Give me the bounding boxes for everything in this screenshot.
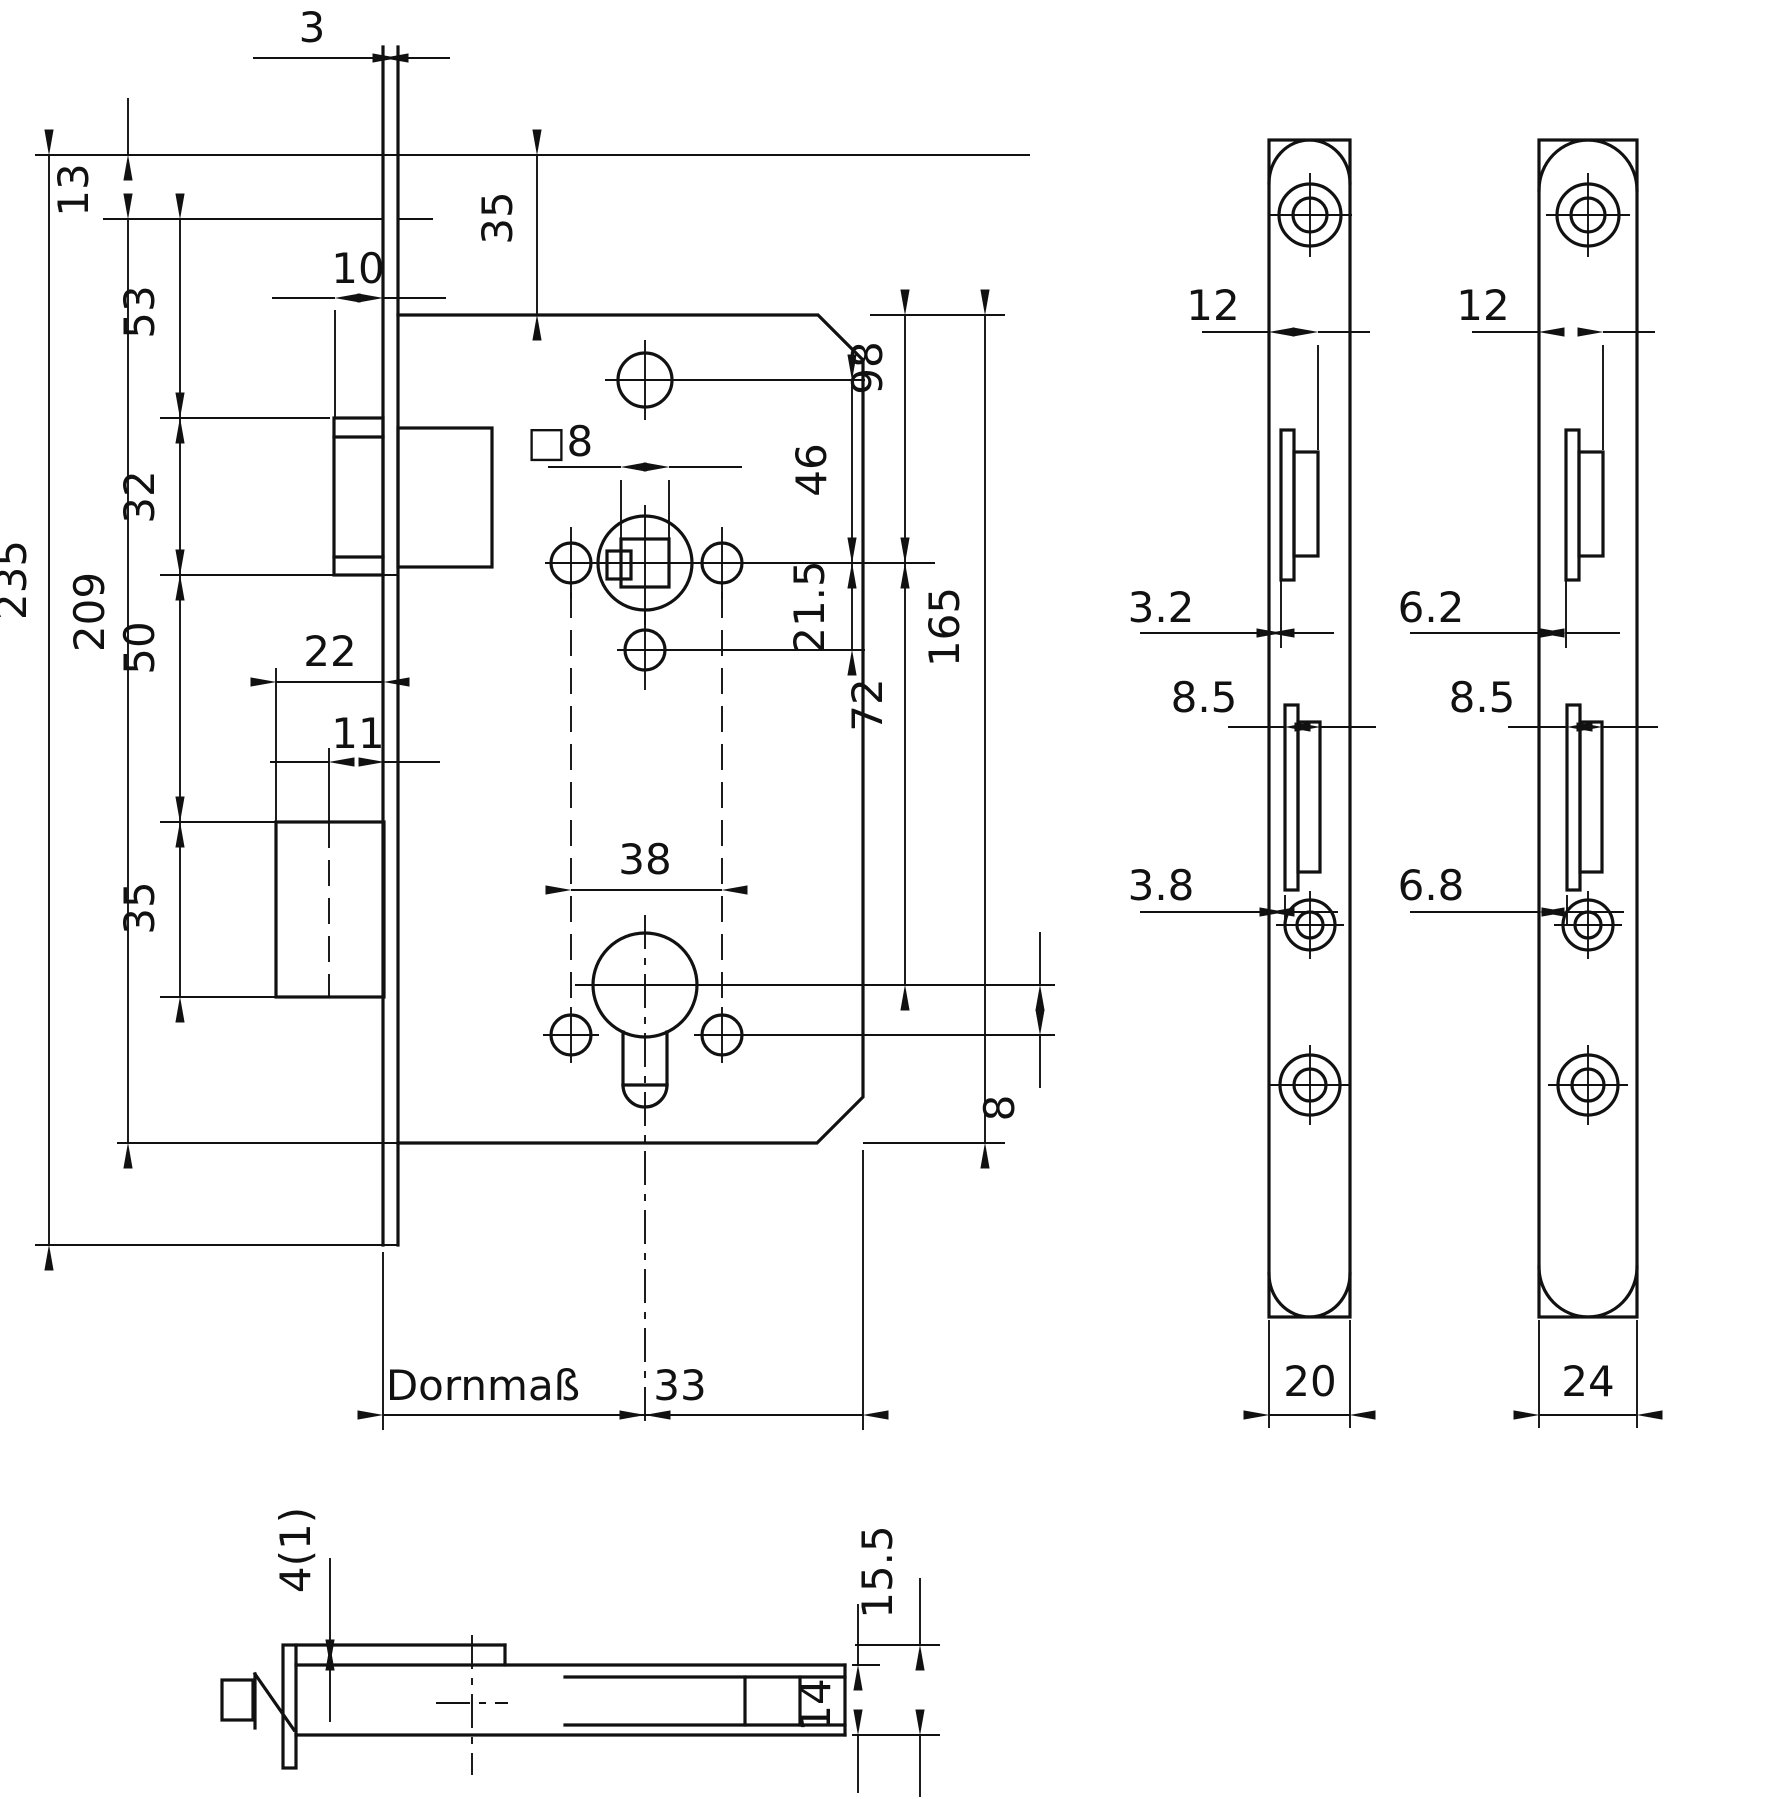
- latch-body-in-case: [398, 428, 492, 567]
- dim-11: 11: [331, 709, 384, 758]
- dim-32: 32: [115, 470, 164, 523]
- plate24-outline: [1539, 140, 1637, 1317]
- dim-35-top: 35: [473, 191, 522, 244]
- dim-72: 72: [843, 678, 892, 731]
- bottom-dim-4-1: 4(1): [271, 1507, 320, 1593]
- dim-98: 98: [843, 341, 892, 394]
- dim-209: 209: [65, 572, 114, 652]
- plate24-dim-6-2: 6.2: [1398, 583, 1465, 632]
- bottom-extensions: [852, 1645, 940, 1735]
- plate24-latch-front: [1566, 430, 1579, 580]
- dim-8: 8: [975, 1095, 1024, 1122]
- dim-22: 22: [303, 627, 356, 676]
- bottom-latch-tip: [222, 1680, 253, 1720]
- lock-case-outline: [398, 315, 863, 1143]
- dim-35-left: 35: [115, 881, 164, 934]
- dim-33: 33: [653, 1361, 706, 1410]
- dim-21-5: 21.5: [785, 560, 834, 654]
- lock-technical-drawing-page: 3 13 235 209 53 32 50 35 10 22 11 35 □8 …: [0, 0, 1772, 1799]
- dim-38: 38: [618, 835, 671, 884]
- plate20-screw-top: [1268, 173, 1352, 257]
- main-view: 3 13 235 209 53 32 50 35 10 22 11 35 □8 …: [0, 3, 1055, 1430]
- dim-square-8: □8: [527, 417, 593, 466]
- plate20-dim-12: 12: [1186, 281, 1239, 330]
- plate20-dim-3-8: 3.8: [1128, 861, 1195, 910]
- latch-bolt: [334, 418, 383, 575]
- plate20-dim-3-2: 3.2: [1128, 583, 1195, 632]
- plate20-rounded-bottom: [1269, 1274, 1350, 1317]
- plate24-bolt-front: [1567, 705, 1580, 890]
- dim-13: 13: [49, 163, 98, 216]
- plate24-dim-8-5: 8.5: [1449, 673, 1516, 722]
- plate20-dim-8-5: 8.5: [1171, 673, 1238, 722]
- plate24-dim-12: 12: [1456, 281, 1509, 330]
- plate24-rounded-bottom: [1539, 1267, 1637, 1317]
- plate20-screw-low: [1270, 1045, 1350, 1125]
- faceplate-24-view: 12 6.2 8.5 6.8 24: [1398, 140, 1658, 1428]
- bottom-latch-bevel: [255, 1674, 294, 1730]
- plate24-extensions: [1539, 345, 1637, 1428]
- faceplate-20-view: 12 3.2 8.5 3.8 20: [1128, 140, 1376, 1428]
- dim-235: 235: [0, 540, 36, 620]
- dim-53: 53: [115, 285, 164, 338]
- bottom-faceplate-section: [283, 1645, 296, 1768]
- deadbolt: [276, 822, 384, 997]
- dim-10: 10: [331, 244, 384, 293]
- plate20-dim-width: 20: [1283, 1357, 1336, 1406]
- dim-46: 46: [787, 443, 836, 496]
- plate20-bolt-block: [1298, 722, 1320, 872]
- lock-technical-drawing: 3 13 235 209 53 32 50 35 10 22 11 35 □8 …: [0, 0, 1772, 1799]
- follower-tab: [607, 551, 631, 579]
- bottom-dim-15-5: 15.5: [853, 1525, 902, 1619]
- bottom-view: 4(1) 15.5 14: [222, 1507, 940, 1797]
- dim-dornmass: Dornmaß: [386, 1361, 580, 1410]
- plate24-dim-6-8: 6.8: [1398, 861, 1465, 910]
- plate20-latch-front: [1281, 430, 1294, 580]
- dim-plate-thickness: 3: [299, 3, 326, 52]
- dim-50: 50: [115, 621, 164, 674]
- dim-165: 165: [920, 587, 969, 667]
- plate20-outline: [1269, 140, 1350, 1317]
- plate20-screw-mid: [1276, 891, 1344, 959]
- plate24-bolt-block: [1580, 722, 1602, 872]
- bottom-dim-14: 14: [791, 1678, 840, 1731]
- main-dimension-arrows-outside: [128, 58, 1040, 1088]
- plate24-screw-low: [1548, 1045, 1628, 1125]
- plate24-latch-block: [1579, 452, 1603, 556]
- plate20-bolt-front: [1285, 705, 1298, 890]
- plate24-screw-top: [1546, 173, 1630, 257]
- plate24-dim-width: 24: [1561, 1357, 1614, 1406]
- plate24-screw-mid: [1554, 891, 1622, 959]
- plate20-latch-block: [1294, 452, 1318, 556]
